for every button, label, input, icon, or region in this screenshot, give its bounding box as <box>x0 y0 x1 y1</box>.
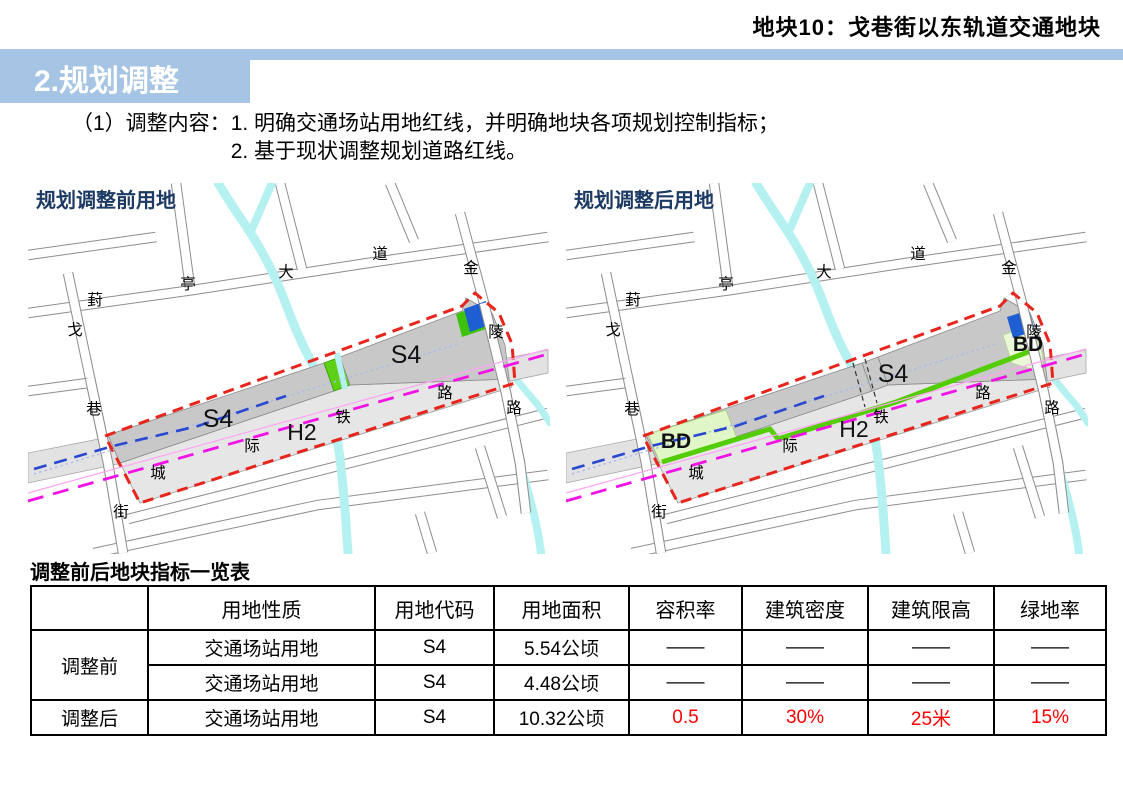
content-item-1: 1. 明确交通场站用地红线，并明确地块各项规划控制指标； <box>231 110 779 138</box>
table-cell: S4 <box>375 630 494 665</box>
svg-text:街: 街 <box>113 503 129 521</box>
table-cell: 10.32公顷 <box>494 700 629 735</box>
svg-text:葑: 葑 <box>625 291 641 309</box>
indicator-table: 用地性质用地代码用地面积容积率建筑密度建筑限高绿地率调整前交通场站用地S45.5… <box>30 585 1107 736</box>
svg-text:BD: BD <box>1013 333 1043 356</box>
table-cell: —— <box>742 665 868 700</box>
svg-text:H2: H2 <box>839 416 868 442</box>
table-header-cell: 绿地率 <box>994 586 1106 630</box>
table-cell: —— <box>629 665 742 700</box>
table-header-cell: 用地面积 <box>494 586 629 630</box>
content-items: 1. 明确交通场站用地红线，并明确地块各项规划控制指标； 2. 基于现状调整规划… <box>231 110 779 166</box>
content-label: （1）调整内容： <box>72 110 231 166</box>
table-cell: —— <box>868 630 994 665</box>
table-header-cell: 建筑限高 <box>868 586 994 630</box>
table-cell: 4.48公顷 <box>494 665 629 700</box>
svg-text:戈: 戈 <box>605 321 621 339</box>
row-group-label: 调整后 <box>31 700 148 735</box>
adjustment-content: （1）调整内容： 1. 明确交通场站用地红线，并明确地块各项规划控制指标； 2.… <box>72 110 779 166</box>
svg-text:路: 路 <box>1044 399 1060 417</box>
map-svg-before: 葑亭大道金陵路戈巷街城际铁路S4S4H2规划调整前用地 <box>28 183 550 554</box>
svg-text:亭: 亭 <box>180 275 196 293</box>
svg-text:H2: H2 <box>287 419 316 445</box>
map-title: 规划调整后用地 <box>574 188 714 212</box>
svg-text:际: 际 <box>244 437 260 455</box>
content-item-2: 2. 基于现状调整规划道路红线。 <box>231 138 779 166</box>
table-header-cell: 建筑密度 <box>742 586 868 630</box>
svg-text:BD: BD <box>661 430 691 453</box>
svg-text:道: 道 <box>372 245 388 263</box>
svg-text:S4: S4 <box>391 341 422 369</box>
map-title: 规划调整前用地 <box>36 188 176 212</box>
svg-text:城: 城 <box>150 464 166 482</box>
table-cell: —— <box>868 665 994 700</box>
table-cell: 交通场站用地 <box>148 665 375 700</box>
table-corner-cell <box>31 586 148 630</box>
accent-bar <box>0 49 1123 60</box>
svg-text:金: 金 <box>1001 259 1017 277</box>
section-title-block: 2.规划调整 <box>0 60 250 103</box>
svg-text:金: 金 <box>463 259 479 277</box>
svg-text:铁: 铁 <box>873 408 889 426</box>
svg-text:亭: 亭 <box>718 275 734 293</box>
table-cell: 25米 <box>868 700 994 735</box>
table-cell: —— <box>742 630 868 665</box>
svg-text:铁: 铁 <box>335 408 351 426</box>
svg-text:路: 路 <box>506 399 522 417</box>
table-cell: S4 <box>375 665 494 700</box>
svg-text:路: 路 <box>437 384 453 402</box>
table-cell: 5.54公顷 <box>494 630 629 665</box>
map-svg-after: 葑亭大道金陵路戈巷街城际铁路S4H2BDBD规划调整后用地 <box>566 183 1088 554</box>
section-title: 2.规划调整 <box>0 60 250 103</box>
svg-text:际: 际 <box>782 437 798 455</box>
table-cell: 0.5 <box>629 700 742 735</box>
svg-text:大: 大 <box>278 263 294 281</box>
table-cell: —— <box>629 630 742 665</box>
svg-text:S4: S4 <box>878 360 909 388</box>
table-cell: —— <box>994 630 1106 665</box>
svg-text:街: 街 <box>651 503 667 521</box>
table-cell: S4 <box>375 700 494 735</box>
row-group-label: 调整前 <box>31 630 148 700</box>
table-cell: 交通场站用地 <box>148 630 375 665</box>
map-after-adjustment: 葑亭大道金陵路戈巷街城际铁路S4H2BDBD规划调整后用地 <box>566 183 1088 554</box>
table-cell: —— <box>994 665 1106 700</box>
svg-text:城: 城 <box>688 464 704 482</box>
table-header-cell: 用地性质 <box>148 586 375 630</box>
map-before-adjustment: 葑亭大道金陵路戈巷街城际铁路S4S4H2规划调整前用地 <box>28 183 550 554</box>
table-cell: 30% <box>742 700 868 735</box>
svg-text:巷: 巷 <box>86 400 102 418</box>
table-header-cell: 容积率 <box>629 586 742 630</box>
svg-text:路: 路 <box>975 384 991 402</box>
table-title: 调整前后地块指标一览表 <box>30 556 250 585</box>
table-header-cell: 用地代码 <box>375 586 494 630</box>
svg-text:巷: 巷 <box>624 400 640 418</box>
table-cell: 交通场站用地 <box>148 700 375 735</box>
svg-text:葑: 葑 <box>87 291 103 309</box>
slide-header-note: 地块10：戈巷街以东轨道交通地块 <box>753 10 1101 42</box>
svg-text:陵: 陵 <box>488 323 504 341</box>
svg-text:戈: 戈 <box>67 321 83 339</box>
svg-text:S4: S4 <box>203 405 234 433</box>
table-cell: 15% <box>994 700 1106 735</box>
svg-text:道: 道 <box>910 245 926 263</box>
svg-text:大: 大 <box>816 263 832 281</box>
